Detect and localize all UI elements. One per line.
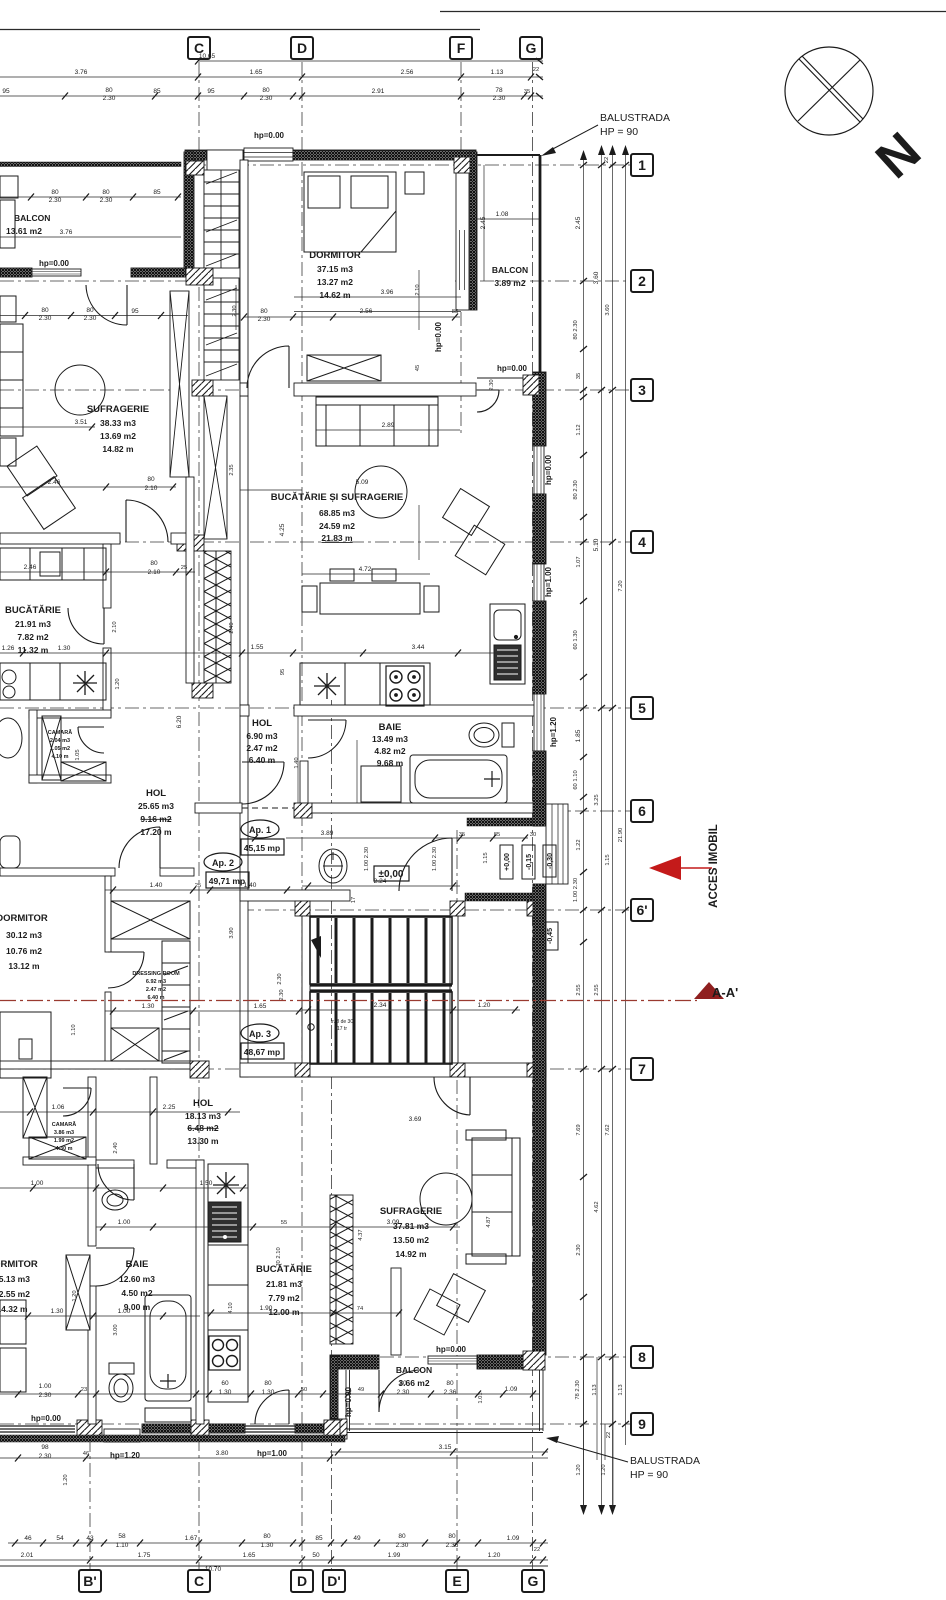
svg-text:1.20: 1.20	[488, 1552, 501, 1559]
svg-text:2.30: 2.30	[576, 1244, 582, 1255]
svg-text:2.30: 2.30	[232, 305, 238, 316]
svg-text:25: 25	[181, 565, 187, 571]
svg-text:21.91 m3: 21.91 m3	[15, 619, 51, 629]
svg-text:13.69 m2: 13.69 m2	[100, 431, 136, 441]
svg-text:2.47 m2: 2.47 m2	[246, 743, 277, 753]
svg-text:1.09: 1.09	[507, 1535, 520, 1542]
svg-text:BUCĂTĂRIE ȘI SUFRAGERIE: BUCĂTĂRIE ȘI SUFRAGERIE	[271, 492, 403, 503]
svg-text:Ap. 2: Ap. 2	[212, 858, 234, 868]
svg-text:2.30: 2.30	[279, 989, 285, 1000]
svg-text:2.56: 2.56	[401, 69, 414, 76]
svg-text:1.30: 1.30	[58, 645, 71, 652]
svg-text:2.34: 2.34	[374, 1002, 387, 1009]
svg-text:2.30: 2.30	[49, 197, 62, 204]
svg-text:2.04 m3: 2.04 m3	[50, 738, 70, 744]
svg-text:38.33 m3: 38.33 m3	[100, 418, 136, 428]
svg-text:hp=0.00: hp=0.00	[436, 1345, 467, 1354]
svg-text:68.85 m3: 68.85 m3	[319, 508, 355, 518]
svg-text:2.30: 2.30	[84, 315, 97, 322]
svg-text:7.79 m2: 7.79 m2	[268, 1293, 299, 1303]
svg-text:1.99 m2: 1.99 m2	[54, 1138, 74, 1144]
svg-text:2.36: 2.36	[446, 1542, 459, 1549]
svg-text:1.08: 1.08	[496, 211, 509, 218]
svg-text:2.01: 2.01	[21, 1552, 34, 1559]
svg-text:F: F	[457, 40, 466, 56]
svg-text:SUFRAGERIE: SUFRAGERIE	[380, 1206, 442, 1217]
svg-text:2.35: 2.35	[229, 464, 235, 475]
svg-text:4.72: 4.72	[359, 566, 372, 573]
svg-text:1.00 2.30: 1.00 2.30	[573, 878, 579, 902]
svg-text:3.15: 3.15	[439, 1444, 452, 1451]
svg-text:12.60 m3: 12.60 m3	[119, 1274, 155, 1284]
svg-text:2.91: 2.91	[372, 88, 385, 95]
svg-text:-0,30: -0,30	[547, 853, 554, 869]
svg-text:3.25: 3.25	[594, 794, 600, 805]
svg-text:49,71 mp: 49,71 mp	[209, 876, 245, 886]
svg-text:HOL: HOL	[146, 788, 166, 799]
svg-text:55: 55	[281, 1220, 287, 1226]
svg-text:DRESSING ROOM: DRESSING ROOM	[132, 971, 180, 977]
svg-text:BUCĂTĂRIE: BUCĂTĂRIE	[5, 605, 61, 616]
svg-text:-0,15: -0,15	[526, 854, 533, 870]
svg-text:2.46: 2.46	[24, 564, 37, 571]
svg-text:2: 2	[638, 273, 646, 289]
svg-text:17.20 m: 17.20 m	[140, 827, 172, 837]
svg-text:85: 85	[153, 88, 161, 95]
svg-text:60: 60	[221, 1380, 229, 1387]
svg-text:1.10: 1.10	[116, 1542, 129, 1549]
svg-text:7.62: 7.62	[605, 1124, 611, 1135]
svg-text:1.30: 1.30	[219, 1389, 232, 1396]
svg-text:4.50 m2: 4.50 m2	[121, 1288, 152, 1298]
svg-text:80: 80	[399, 1380, 407, 1387]
svg-text:2.30: 2.30	[100, 197, 113, 204]
svg-text:1.40: 1.40	[294, 757, 300, 768]
svg-text:BALCON: BALCON	[396, 1365, 432, 1375]
svg-text:22: 22	[604, 157, 610, 163]
svg-text:14.92 m: 14.92 m	[395, 1249, 427, 1259]
svg-text:80: 80	[147, 476, 155, 483]
svg-text:10.70: 10.70	[205, 1566, 222, 1573]
svg-text:1.13: 1.13	[592, 1384, 598, 1395]
svg-text:2.30: 2.30	[489, 379, 495, 390]
svg-text:4.37: 4.37	[358, 1229, 364, 1240]
svg-text:7.82 m2: 7.82 m2	[17, 632, 48, 642]
svg-text:hp=0.00: hp=0.00	[497, 364, 528, 373]
svg-text:25.65 m3: 25.65 m3	[138, 801, 174, 811]
svg-text:14.32 m: 14.32 m	[0, 1304, 28, 1314]
svg-text:3.96: 3.96	[381, 289, 394, 296]
svg-text:14.82 m: 14.82 m	[102, 444, 134, 454]
svg-text:13.49 m3: 13.49 m3	[372, 734, 408, 744]
svg-text:1.00: 1.00	[31, 1180, 44, 1187]
svg-text:14.62 m: 14.62 m	[319, 290, 351, 300]
svg-text:9: 9	[638, 1416, 646, 1432]
svg-text:7.20: 7.20	[618, 580, 624, 591]
svg-text:98: 98	[41, 1444, 49, 1451]
svg-text:2.10: 2.10	[112, 621, 118, 632]
svg-text:60 1.30: 60 1.30	[573, 630, 579, 649]
svg-text:17 tr: 17 tr	[337, 1026, 347, 1032]
svg-text:78 2.30: 78 2.30	[575, 1380, 581, 1399]
svg-text:1.55: 1.55	[251, 644, 264, 651]
svg-text:1.85: 1.85	[575, 729, 582, 742]
svg-text:1.20: 1.20	[63, 1474, 69, 1485]
svg-text:SUFRAGERIE: SUFRAGERIE	[87, 404, 149, 415]
svg-text:2.30: 2.30	[277, 973, 283, 984]
svg-text:2.56: 2.56	[360, 308, 373, 315]
svg-text:95: 95	[131, 308, 139, 315]
svg-text:2.30: 2.30	[39, 315, 52, 322]
svg-text:1.22: 1.22	[576, 839, 582, 850]
svg-text:4.10 m: 4.10 m	[51, 754, 68, 760]
svg-text:3.90: 3.90	[229, 927, 235, 938]
svg-text:85: 85	[153, 189, 161, 196]
svg-text:1.20: 1.20	[115, 678, 121, 689]
svg-text:10.65: 10.65	[199, 53, 216, 60]
svg-text:ACCES IMOBIL: ACCES IMOBIL	[708, 824, 720, 908]
svg-text:hp=1.20: hp=1.20	[110, 1451, 141, 1460]
svg-text:4.62: 4.62	[594, 1201, 600, 1212]
svg-text:2.30: 2.30	[39, 1453, 52, 1460]
svg-text:1.00: 1.00	[118, 1219, 131, 1226]
svg-text:3.86 m3: 3.86 m3	[54, 1130, 74, 1136]
svg-text:1.09: 1.09	[505, 1386, 518, 1393]
svg-text:2.25: 2.25	[163, 1104, 176, 1111]
svg-text:3.51: 3.51	[75, 419, 88, 426]
svg-text:hp=0.00: hp=0.00	[31, 1414, 62, 1423]
svg-text:1.40: 1.40	[244, 882, 257, 889]
svg-text:DORMITOR: DORMITOR	[0, 913, 48, 924]
svg-text:2.40: 2.40	[229, 622, 235, 633]
svg-text:hp=0.00: hp=0.00	[344, 1386, 353, 1417]
svg-text:22: 22	[606, 1432, 612, 1438]
svg-text:80: 80	[262, 87, 270, 94]
svg-text:CAMARĂ: CAMARĂ	[48, 729, 72, 736]
svg-text:4.87: 4.87	[486, 1216, 492, 1227]
svg-text:22: 22	[533, 67, 539, 73]
svg-text:30.12 m3: 30.12 m3	[6, 930, 42, 940]
svg-text:80: 80	[105, 87, 113, 94]
svg-text:2.24: 2.24	[374, 878, 387, 885]
svg-text:4.30 m: 4.30 m	[55, 1146, 72, 1152]
svg-text:1.30: 1.30	[262, 1389, 275, 1396]
svg-text:1.12: 1.12	[576, 424, 582, 435]
svg-text:46: 46	[83, 1451, 89, 1457]
svg-text:6.48 m2: 6.48 m2	[187, 1123, 218, 1133]
svg-text:HP = 90: HP = 90	[630, 1469, 668, 1481]
svg-text:95: 95	[207, 88, 215, 95]
svg-text:50: 50	[312, 1552, 320, 1559]
svg-text:6.40 m: 6.40 m	[249, 755, 276, 765]
svg-text:7: 7	[638, 1061, 646, 1077]
svg-text:hp=0.00: hp=0.00	[544, 454, 553, 485]
svg-text:2.30: 2.30	[260, 95, 273, 102]
svg-text:3.60: 3.60	[593, 271, 600, 284]
svg-text:80: 80	[260, 308, 268, 315]
svg-text:2.55: 2.55	[576, 984, 582, 995]
svg-text:2.30: 2.30	[493, 95, 506, 102]
svg-text:2.46: 2.46	[48, 479, 61, 486]
svg-text:60 1.10: 60 1.10	[573, 770, 579, 789]
svg-text:80: 80	[51, 189, 59, 196]
svg-text:BAIE: BAIE	[379, 722, 402, 733]
svg-text:35: 35	[576, 373, 582, 379]
svg-text:1.20: 1.20	[601, 1464, 607, 1475]
svg-text:21.83 m: 21.83 m	[321, 533, 353, 543]
svg-text:+0,00: +0,00	[504, 853, 511, 871]
svg-text:17: 17	[351, 897, 357, 903]
svg-text:46: 46	[24, 1535, 32, 1542]
svg-text:3.09: 3.09	[387, 1219, 400, 1226]
svg-text:2.30: 2.30	[39, 1392, 52, 1399]
svg-text:1.75: 1.75	[138, 1552, 151, 1559]
svg-text:1: 1	[638, 157, 646, 173]
svg-text:HOL: HOL	[193, 1098, 213, 1109]
svg-text:hp=0.00: hp=0.00	[254, 131, 285, 140]
svg-text:24.59 m2: 24.59 m2	[319, 521, 355, 531]
svg-text:80: 80	[86, 307, 94, 314]
svg-text:13.27 m2: 13.27 m2	[317, 277, 353, 287]
svg-text:4.82 m2: 4.82 m2	[374, 746, 405, 756]
svg-text:BALCON: BALCON	[14, 213, 50, 223]
svg-text:85: 85	[315, 1535, 323, 1542]
svg-text:2.36: 2.36	[444, 1389, 457, 1396]
svg-text:1.65: 1.65	[250, 69, 263, 76]
svg-text:80: 80	[263, 1533, 271, 1540]
svg-text:BALUSTRADA: BALUSTRADA	[630, 1455, 700, 1467]
svg-text:3.60: 3.60	[605, 304, 611, 315]
svg-text:80: 80	[150, 560, 158, 567]
svg-text:4: 4	[638, 534, 646, 550]
svg-text:1.00 2.30: 1.00 2.30	[364, 847, 370, 871]
svg-text:70 2.10: 70 2.10	[276, 1247, 282, 1266]
svg-text:1.30: 1.30	[261, 1542, 274, 1549]
svg-text:3.89 m2: 3.89 m2	[494, 278, 525, 288]
svg-text:13.61 m2: 13.61 m2	[6, 226, 42, 236]
svg-text:HP = 90: HP = 90	[600, 126, 638, 138]
svg-text:5.09: 5.09	[356, 479, 369, 486]
svg-text:3.80: 3.80	[216, 1450, 229, 1457]
svg-text:1.05: 1.05	[75, 749, 81, 760]
svg-text:4.10: 4.10	[228, 1302, 234, 1313]
svg-text:D: D	[297, 40, 307, 56]
svg-text:DORMITOR: DORMITOR	[0, 1259, 38, 1270]
svg-text:23: 23	[81, 1387, 87, 1393]
svg-text:1.30: 1.30	[51, 1308, 64, 1315]
svg-text:85: 85	[494, 832, 500, 838]
svg-text:1.05 m2: 1.05 m2	[50, 746, 70, 752]
svg-text:74: 74	[357, 1306, 364, 1312]
svg-text:Ap. 3: Ap. 3	[249, 1029, 271, 1039]
svg-text:13.50 m2: 13.50 m2	[393, 1235, 429, 1245]
svg-text:21.81 m3: 21.81 m3	[266, 1279, 302, 1289]
svg-text:43: 43	[86, 1535, 94, 1542]
svg-text:18.13 m3: 18.13 m3	[185, 1111, 221, 1121]
svg-text:54: 54	[56, 1535, 64, 1542]
svg-text:3.44: 3.44	[412, 644, 425, 651]
svg-text:80: 80	[102, 189, 110, 196]
svg-text:13.30 m: 13.30 m	[187, 1136, 219, 1146]
svg-text:49: 49	[353, 1535, 361, 1542]
svg-text:2.30: 2.30	[103, 95, 116, 102]
svg-text:30: 30	[530, 832, 536, 838]
svg-text:7.69: 7.69	[576, 1124, 582, 1135]
svg-text:11.32 m: 11.32 m	[18, 645, 49, 655]
svg-text:1.00 2.30: 1.00 2.30	[432, 847, 438, 871]
svg-text:80: 80	[448, 1533, 456, 1540]
svg-text:2.45: 2.45	[575, 216, 582, 229]
svg-text:80: 80	[264, 1380, 272, 1387]
svg-text:1.26: 1.26	[2, 645, 15, 652]
svg-text:1.90: 1.90	[260, 1305, 273, 1312]
svg-text:6.90 m3: 6.90 m3	[246, 731, 277, 741]
svg-text:1.65: 1.65	[254, 1003, 267, 1010]
svg-text:1.15: 1.15	[605, 854, 611, 865]
svg-text:hp=0.00: hp=0.00	[39, 259, 70, 268]
svg-text:6': 6'	[636, 902, 647, 918]
svg-text:1.20: 1.20	[72, 1290, 78, 1301]
svg-text:HOL: HOL	[252, 718, 272, 729]
svg-text:CAMARĂ: CAMARĂ	[52, 1121, 76, 1128]
svg-text:D': D'	[327, 1573, 340, 1589]
svg-text:78: 78	[495, 87, 503, 94]
svg-text:12.55 m2: 12.55 m2	[0, 1289, 30, 1299]
svg-text:1.10: 1.10	[71, 1024, 77, 1035]
svg-text:95: 95	[2, 88, 10, 95]
svg-text:3.76: 3.76	[75, 69, 88, 76]
svg-text:3.89: 3.89	[321, 830, 334, 837]
svg-text:12.00 m: 12.00 m	[268, 1307, 300, 1317]
svg-text:2.30: 2.30	[397, 1389, 410, 1396]
svg-text:1.00: 1.00	[39, 1383, 52, 1390]
svg-text:10.76 m2: 10.76 m2	[6, 946, 42, 956]
svg-text:80 2.30: 80 2.30	[573, 480, 579, 499]
svg-text:2.10: 2.10	[145, 485, 158, 492]
svg-text:tr. 8 de 30: tr. 8 de 30	[331, 1019, 353, 1025]
svg-text:45,15 mp: 45,15 mp	[244, 843, 280, 853]
svg-text:48,67 mp: 48,67 mp	[244, 1047, 280, 1057]
svg-text:6.20: 6.20	[176, 715, 183, 728]
svg-text:BALUSTRADA: BALUSTRADA	[600, 112, 670, 124]
svg-text:1.20: 1.20	[576, 1464, 582, 1475]
svg-text:25: 25	[195, 883, 201, 889]
svg-text:1.15: 1.15	[483, 852, 489, 863]
svg-text:80 2.30: 80 2.30	[573, 320, 579, 339]
svg-text:9.68 m: 9.68 m	[377, 758, 404, 768]
svg-text:1.99: 1.99	[388, 1552, 401, 1559]
svg-text:9.16 m2: 9.16 m2	[140, 814, 171, 824]
svg-text:B': B'	[83, 1573, 96, 1589]
svg-text:1.30: 1.30	[142, 1003, 155, 1010]
svg-text:BALCON: BALCON	[492, 265, 528, 275]
svg-text:3.69: 3.69	[409, 1116, 422, 1123]
svg-text:1.65: 1.65	[243, 1552, 256, 1559]
svg-text:1.67: 1.67	[185, 1535, 198, 1542]
svg-text:2.10: 2.10	[148, 569, 161, 576]
svg-text:A-A': A-A'	[712, 985, 738, 1000]
svg-text:BUCĂTĂRIE: BUCĂTĂRIE	[256, 1264, 312, 1275]
svg-text:37.15 m3: 37.15 m3	[317, 264, 353, 274]
svg-text:3.00: 3.00	[113, 1324, 119, 1335]
svg-text:80: 80	[41, 307, 49, 314]
svg-text:13.12 m: 13.12 m	[8, 961, 40, 971]
svg-text:2.89: 2.89	[382, 422, 395, 429]
svg-text:2.40: 2.40	[113, 1142, 119, 1153]
svg-text:80: 80	[446, 1380, 454, 1387]
svg-text:6: 6	[638, 803, 646, 819]
svg-text:2.47 m2: 2.47 m2	[146, 987, 166, 993]
svg-text:6.92 m3: 6.92 m3	[146, 979, 166, 985]
svg-text:E: E	[452, 1573, 461, 1589]
svg-text:1.07: 1.07	[576, 556, 582, 567]
svg-text:-0,45: -0,45	[547, 928, 554, 944]
svg-text:hp=1.20: hp=1.20	[549, 716, 558, 747]
svg-text:35: 35	[459, 832, 465, 838]
svg-text:1.20: 1.20	[478, 1002, 491, 1009]
svg-text:21.90: 21.90	[618, 828, 624, 843]
svg-text:G: G	[528, 1573, 539, 1589]
svg-text:80: 80	[398, 1533, 406, 1540]
svg-text:1.01: 1.01	[478, 1392, 484, 1403]
svg-text:DORMITOR: DORMITOR	[309, 250, 361, 261]
svg-text:2.30: 2.30	[396, 1542, 409, 1549]
svg-text:BAIE: BAIE	[126, 1259, 149, 1270]
svg-text:1.50: 1.50	[200, 1180, 213, 1187]
svg-text:Ap. 1: Ap. 1	[249, 825, 271, 835]
svg-text:95: 95	[280, 669, 286, 675]
svg-text:85: 85	[452, 309, 458, 315]
svg-text:2.55: 2.55	[594, 984, 600, 995]
svg-text:C: C	[194, 1573, 204, 1589]
svg-text:D: D	[297, 1573, 307, 1589]
svg-text:2.45: 2.45	[480, 216, 487, 229]
svg-text:2.30: 2.30	[258, 316, 271, 323]
svg-text:5: 5	[638, 700, 646, 716]
svg-text:1.06: 1.06	[52, 1104, 65, 1111]
svg-text:45: 45	[415, 365, 421, 371]
svg-text:G: G	[526, 40, 537, 56]
svg-text:8: 8	[638, 1349, 646, 1365]
svg-text:49: 49	[358, 1387, 364, 1393]
svg-text:1.00: 1.00	[118, 1308, 131, 1315]
svg-text:35: 35	[524, 89, 530, 95]
svg-text:5.10: 5.10	[593, 538, 600, 551]
svg-text:3: 3	[638, 382, 646, 398]
svg-text:1.40: 1.40	[150, 882, 163, 889]
svg-text:50: 50	[301, 1387, 307, 1393]
svg-text:hp=1.00: hp=1.00	[544, 566, 553, 597]
svg-text:4.25: 4.25	[279, 523, 286, 536]
svg-text:15.13 m3: 15.13 m3	[0, 1274, 30, 1284]
svg-text:22: 22	[534, 1547, 540, 1553]
svg-text:3.76: 3.76	[60, 229, 73, 236]
svg-text:2.10: 2.10	[415, 284, 421, 295]
svg-text:1.13: 1.13	[491, 69, 504, 76]
svg-text:58: 58	[118, 1533, 126, 1540]
svg-text:hp=1.00: hp=1.00	[257, 1449, 288, 1458]
svg-text:1.13: 1.13	[618, 1384, 624, 1395]
svg-text:hp=0.00: hp=0.00	[434, 321, 443, 352]
